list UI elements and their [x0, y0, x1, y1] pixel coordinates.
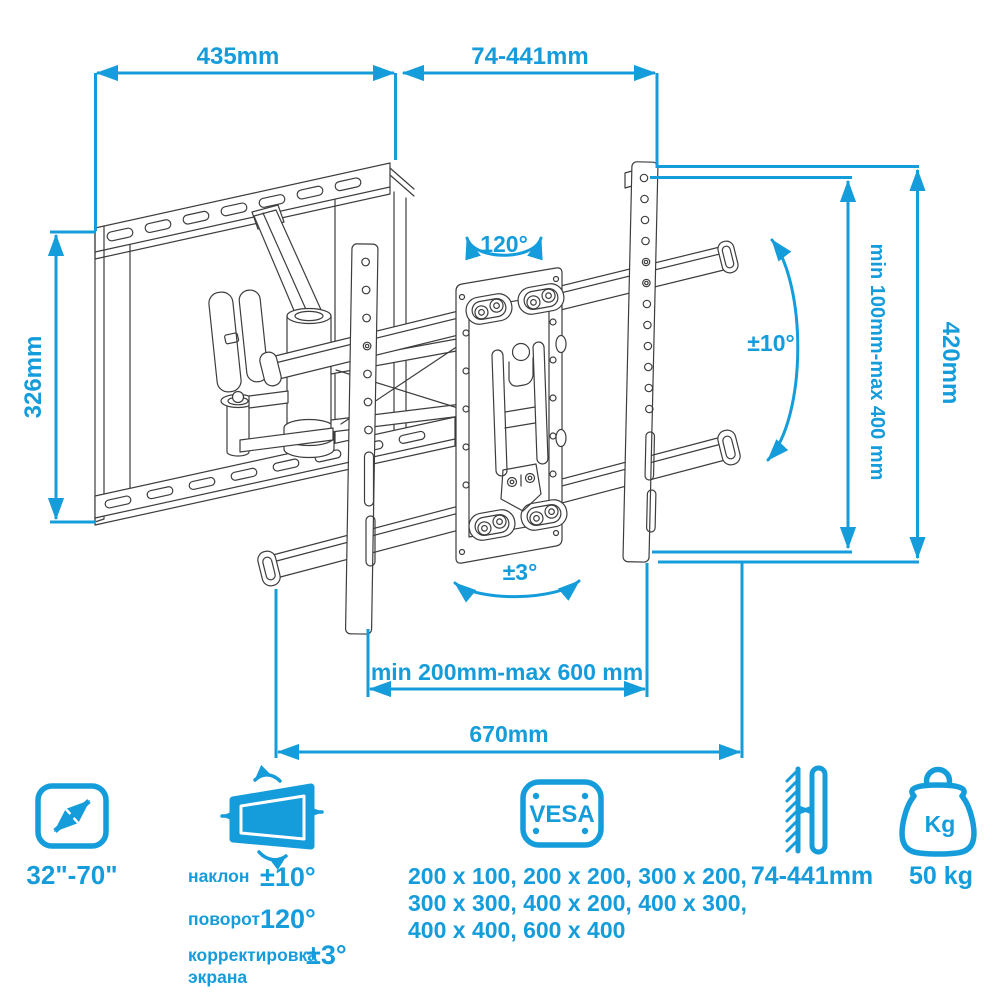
vesa-sizes-line3: 400 x 400, 600 x 400: [408, 917, 625, 943]
dimension-plate-height: 326mm: [20, 232, 96, 522]
swivel-value: 120°: [260, 904, 316, 934]
mount-technical-drawing: [95, 162, 742, 634]
dimension-vesa-vertical-range: min 100mm-max 400 mm: [650, 178, 888, 553]
left-tv-rail: [346, 244, 379, 634]
tilt-label: наклон: [188, 866, 249, 886]
weight-kettlebell-icon: Kg: [902, 770, 974, 855]
tilt-value: ±10°: [260, 862, 316, 892]
legend-screen-size: 32"-70": [26, 786, 117, 890]
rail-span-label: min 200mm-max 600 mm: [371, 659, 643, 685]
adjust-label-line2: экрана: [188, 967, 247, 987]
vesa-icon: VESA: [523, 782, 601, 845]
weight-badge: Kg: [925, 811, 956, 837]
wall-distance-value: 74-441mm: [751, 862, 873, 890]
wall-distance-icon: [787, 768, 825, 852]
extension-range-label: 74-441mm: [471, 43, 588, 70]
tilt-angle-label: ±10°: [747, 330, 794, 356]
tilt-screen-icon: [222, 775, 322, 860]
vesa-vertical-range-label: min 100mm-max 400 mm: [866, 244, 888, 481]
bracket-height-label: 420mm: [937, 322, 964, 405]
tv-mount-spec-sheet: 435mm 74-441mm 326mm 420mm min 100mm-max…: [0, 0, 1000, 1000]
plate-height-label: 326mm: [20, 336, 47, 419]
right-tv-rail: [623, 162, 658, 562]
legend-weight: Kg 50 kg: [902, 770, 974, 891]
tilt-angle-annotation: ±10°: [747, 240, 797, 460]
adjust-label-line1: корректировка: [188, 945, 317, 965]
screen-size-value: 32"-70": [26, 860, 117, 890]
spec-diagram: 435mm 74-441mm 326mm 420mm min 100mm-max…: [0, 0, 1000, 1000]
swivel-angle-label: 120°: [480, 231, 528, 257]
swivel-label: поворот: [188, 909, 260, 929]
legend-movement: наклон ±10° поворот 120° корректировка э…: [188, 775, 347, 987]
level-adjust-label: ±3°: [503, 559, 538, 585]
vesa-sizes-line2: 300 x 300, 400 x 200, 400 x 300,: [408, 890, 747, 916]
dimension-extension-range: 74-441mm: [403, 43, 657, 168]
legend-wall-distance: 74-441mm: [751, 768, 873, 890]
top-width-label: 435mm: [197, 43, 280, 70]
vesa-icon-label: VESA: [529, 801, 594, 828]
dimension-bracket-height: 420mm: [656, 167, 964, 563]
level-adjust-annotation: ±3°: [455, 559, 579, 597]
total-width-label: 670mm: [469, 721, 548, 747]
weight-value: 50 kg: [909, 862, 973, 890]
vesa-head-plate: [456, 268, 569, 563]
adjust-value: ±3°: [306, 940, 347, 970]
legend-row: 32"-70" наклон ±10° поворот 120° коррект…: [26, 768, 973, 987]
vesa-sizes-line1: 200 x 100, 200 x 200, 300 x 200,: [408, 863, 747, 889]
swivel-angle-annotation: 120°: [467, 231, 541, 257]
screen-diagonal-icon: [38, 786, 106, 846]
legend-vesa: VESA 200 x 100, 200 x 200, 300 x 200, 30…: [408, 782, 747, 943]
